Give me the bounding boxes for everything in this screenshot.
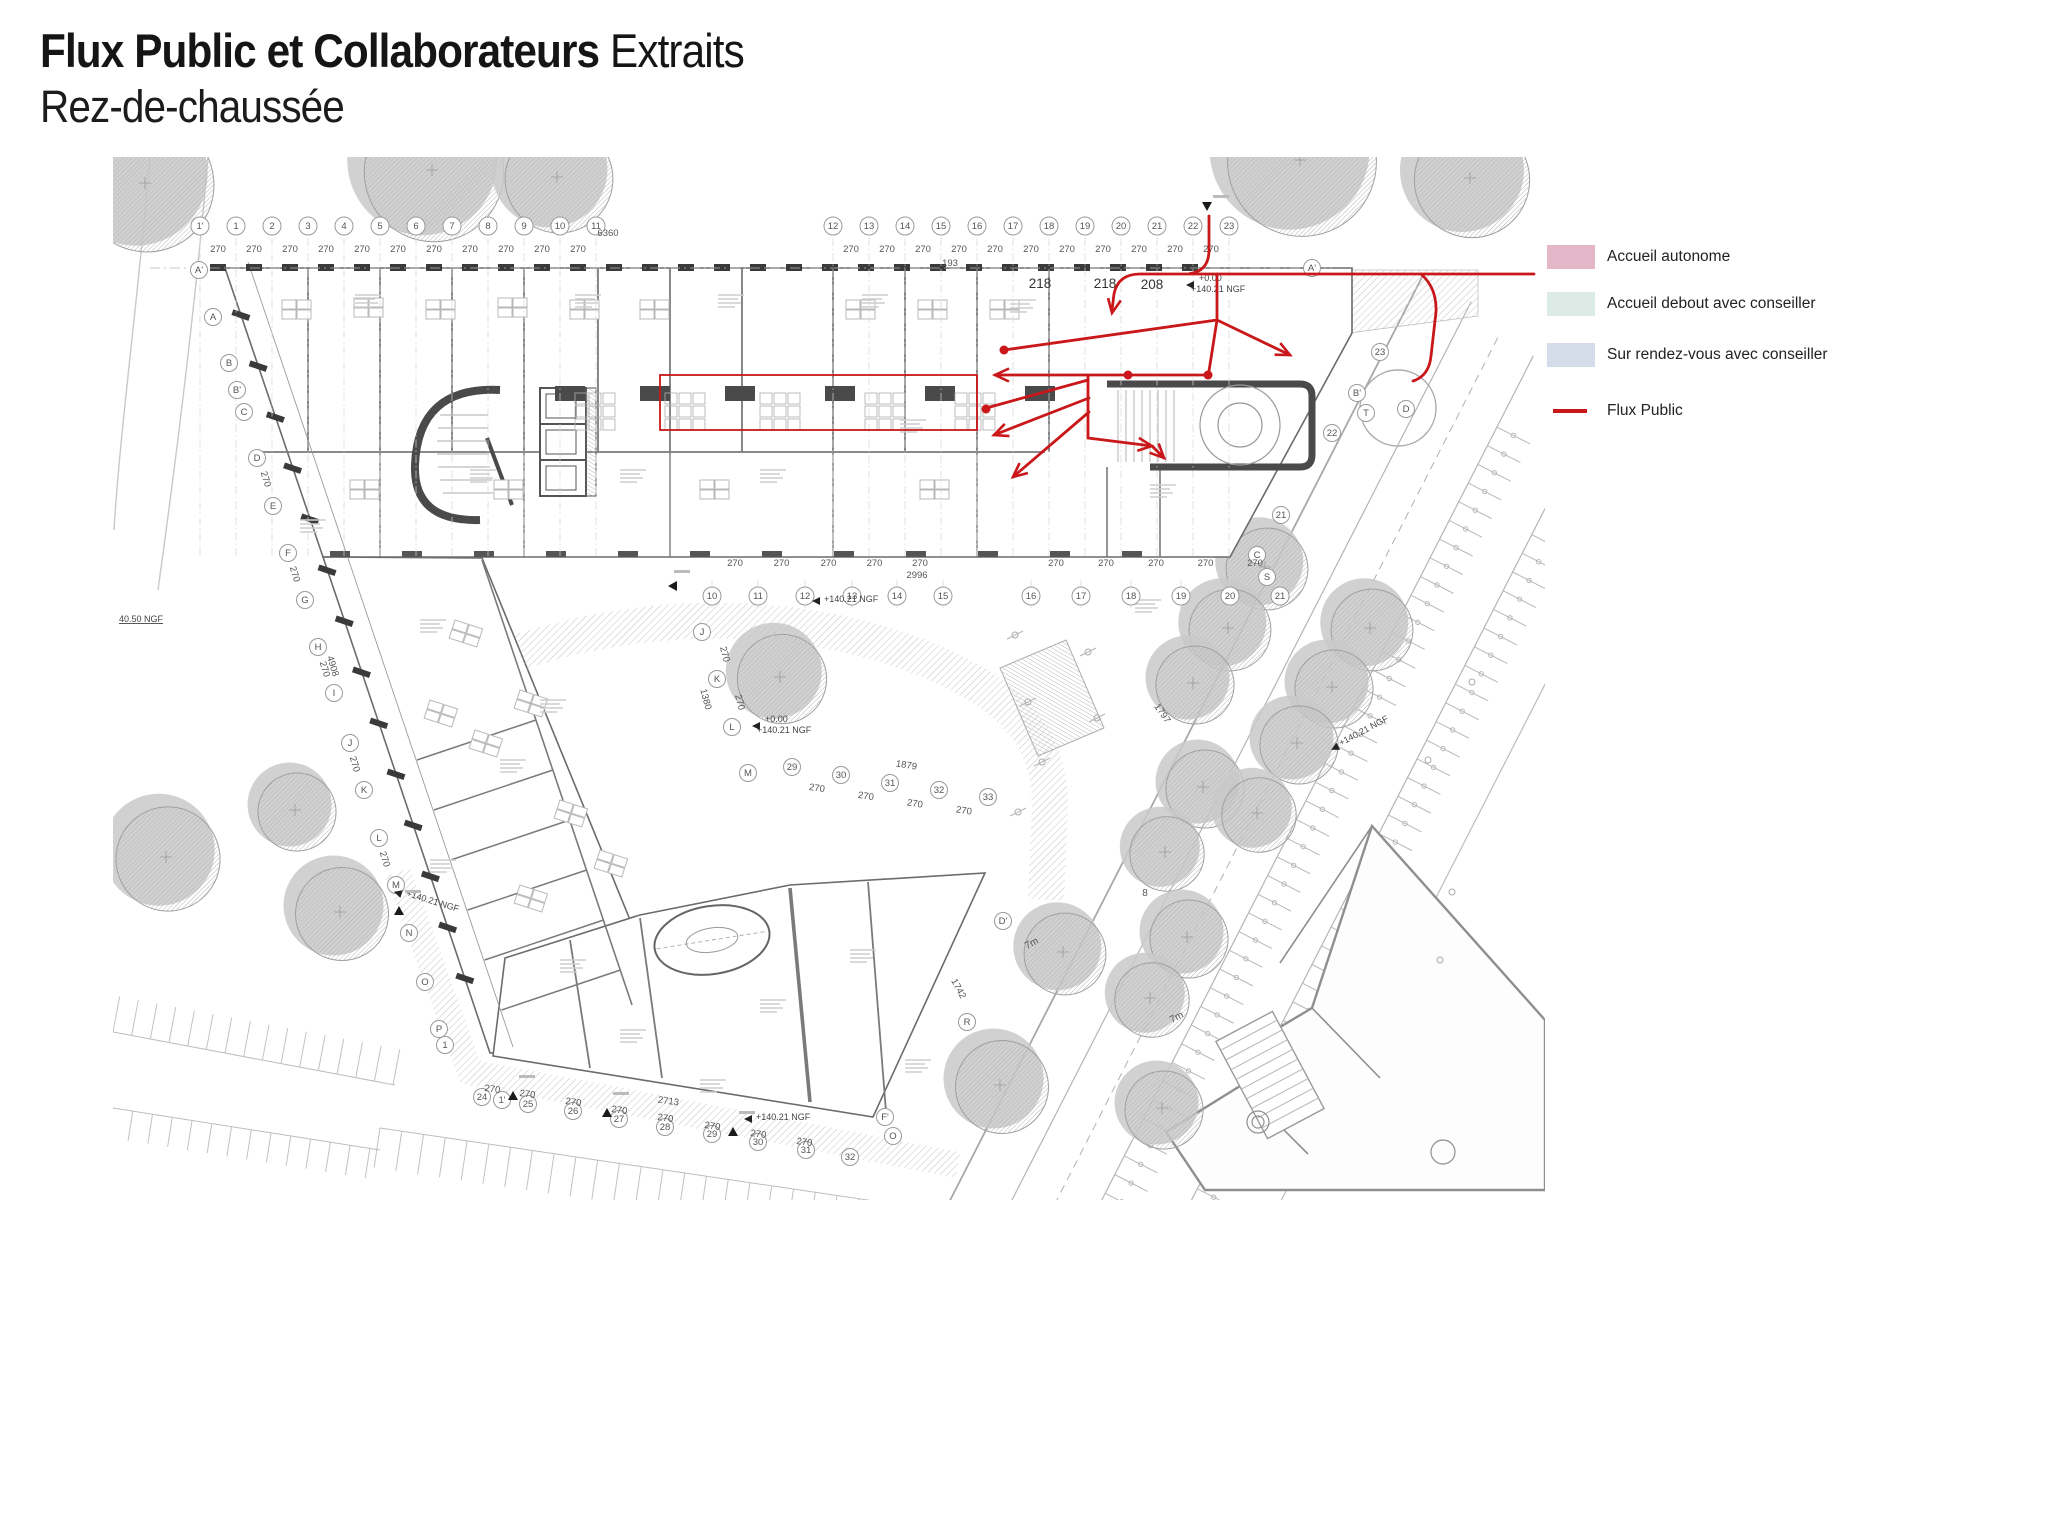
slide: Flux Public et Collaborateurs Extraits R… xyxy=(0,0,2048,1536)
tree xyxy=(1115,1061,1204,1150)
svg-text:270: 270 xyxy=(704,1120,721,1133)
svg-text:18: 18 xyxy=(1126,591,1137,602)
svg-text:208: 208 xyxy=(1141,277,1164,292)
svg-text:6: 6 xyxy=(413,221,418,232)
svg-text:270: 270 xyxy=(377,850,392,868)
svg-text:11: 11 xyxy=(753,591,763,602)
svg-text:14: 14 xyxy=(900,221,911,232)
tree xyxy=(1210,70,1377,237)
svg-text:270: 270 xyxy=(1048,558,1064,569)
flux-node xyxy=(1000,346,1009,355)
svg-text:L: L xyxy=(376,833,381,844)
svg-text:2996: 2996 xyxy=(906,570,927,581)
svg-text:+0.00: +0.00 xyxy=(765,714,788,724)
svg-text:O: O xyxy=(421,977,428,988)
svg-text:270: 270 xyxy=(867,558,883,569)
svg-text:29: 29 xyxy=(787,762,798,773)
svg-text:218: 218 xyxy=(1029,276,1052,291)
svg-text:10: 10 xyxy=(707,591,718,602)
svg-text:9: 9 xyxy=(521,221,526,232)
tree xyxy=(1400,108,1530,238)
svg-text:270: 270 xyxy=(774,558,790,569)
svg-text:193: 193 xyxy=(942,258,958,269)
svg-text:270: 270 xyxy=(1203,244,1219,255)
svg-text:270: 270 xyxy=(246,244,262,255)
svg-text:2: 2 xyxy=(269,221,274,232)
svg-text:L: L xyxy=(729,722,734,733)
svg-text:1: 1 xyxy=(442,1040,447,1051)
svg-text:270: 270 xyxy=(210,244,226,255)
svg-text:22: 22 xyxy=(1327,428,1338,439)
svg-text:J: J xyxy=(348,738,353,749)
svg-text:G: G xyxy=(301,595,308,606)
svg-text:270: 270 xyxy=(1131,244,1147,255)
svg-text:270: 270 xyxy=(1148,558,1164,569)
svg-text:270: 270 xyxy=(717,645,732,663)
svg-text:21: 21 xyxy=(1275,591,1286,602)
tree xyxy=(103,794,220,911)
svg-text:270: 270 xyxy=(912,558,928,569)
svg-text:270: 270 xyxy=(519,1088,536,1101)
svg-text:270: 270 xyxy=(354,244,370,255)
svg-text:F': F' xyxy=(881,1112,889,1123)
svg-text:B: B xyxy=(226,358,232,369)
svg-text:16: 16 xyxy=(1026,591,1037,602)
svg-text:270: 270 xyxy=(318,244,334,255)
svg-text:+140.21 NGF: +140.21 NGF xyxy=(756,1112,811,1122)
svg-text:270: 270 xyxy=(484,1083,501,1096)
svg-text:21: 21 xyxy=(1276,510,1287,521)
svg-text:R: R xyxy=(964,1017,971,1028)
svg-text:270: 270 xyxy=(282,244,298,255)
svg-text:32: 32 xyxy=(845,1152,856,1163)
svg-text:8: 8 xyxy=(1142,888,1148,899)
svg-text:218: 218 xyxy=(1094,276,1117,291)
svg-text:4: 4 xyxy=(341,221,346,232)
svg-text:12: 12 xyxy=(828,221,839,232)
svg-text:32: 32 xyxy=(934,785,945,796)
svg-text:5: 5 xyxy=(377,221,382,232)
svg-text:7: 7 xyxy=(449,221,454,232)
svg-text:33: 33 xyxy=(983,792,994,803)
svg-text:270: 270 xyxy=(611,1104,628,1117)
svg-text:270: 270 xyxy=(951,244,967,255)
svg-text:C: C xyxy=(241,407,248,418)
svg-text:270: 270 xyxy=(258,470,273,488)
svg-text:8: 8 xyxy=(485,221,490,232)
svg-text:19: 19 xyxy=(1176,591,1187,602)
svg-text:270: 270 xyxy=(955,804,972,817)
svg-text:270: 270 xyxy=(1095,244,1111,255)
svg-text:P: P xyxy=(436,1024,442,1035)
svg-text:270: 270 xyxy=(906,797,923,810)
svg-text:B': B' xyxy=(233,385,241,396)
svg-text:F: F xyxy=(285,548,291,559)
svg-text:D: D xyxy=(1403,404,1410,415)
svg-text:18: 18 xyxy=(1044,221,1055,232)
svg-text:270: 270 xyxy=(426,244,442,255)
tree xyxy=(248,763,337,852)
tree xyxy=(491,111,612,232)
svg-text:17: 17 xyxy=(1008,221,1019,232)
floor-plan: 1'12345678910111213141516171819202122231… xyxy=(0,0,2048,1536)
svg-text:K: K xyxy=(361,785,368,796)
svg-text:13: 13 xyxy=(864,221,875,232)
svg-text:20: 20 xyxy=(1225,591,1236,602)
svg-text:K: K xyxy=(714,674,721,685)
tree xyxy=(284,856,389,961)
svg-text:23: 23 xyxy=(1375,347,1386,358)
svg-text:I: I xyxy=(333,688,336,699)
svg-text:270: 270 xyxy=(657,1112,674,1125)
svg-text:30: 30 xyxy=(836,770,847,781)
svg-text:270: 270 xyxy=(390,244,406,255)
svg-text:T: T xyxy=(1363,408,1369,419)
svg-text:40.50 NGF: 40.50 NGF xyxy=(119,614,164,624)
svg-text:J: J xyxy=(700,627,705,638)
svg-text:270: 270 xyxy=(808,782,825,795)
svg-text:1': 1' xyxy=(498,1095,505,1106)
svg-text:270: 270 xyxy=(915,244,931,255)
svg-text:1879: 1879 xyxy=(895,758,918,772)
svg-text:15: 15 xyxy=(936,221,947,232)
svg-text:270: 270 xyxy=(570,244,586,255)
svg-text:270: 270 xyxy=(857,790,874,803)
svg-text:22: 22 xyxy=(1188,221,1199,232)
svg-text:M: M xyxy=(392,880,400,891)
svg-text:270: 270 xyxy=(1198,558,1214,569)
svg-text:23: 23 xyxy=(1224,221,1235,232)
flux-node xyxy=(1204,371,1213,380)
svg-text:10: 10 xyxy=(555,221,566,232)
svg-text:270: 270 xyxy=(796,1136,813,1149)
svg-text:D: D xyxy=(254,453,261,464)
svg-text:270: 270 xyxy=(879,244,895,255)
top-wing xyxy=(225,268,1352,557)
svg-text:+140.21 NGF: +140.21 NGF xyxy=(757,725,812,735)
svg-text:270: 270 xyxy=(821,558,837,569)
svg-text:B': B' xyxy=(1353,388,1361,399)
svg-text:1742: 1742 xyxy=(948,977,968,1001)
tree xyxy=(944,1029,1049,1134)
svg-text:N: N xyxy=(406,928,413,939)
svg-text:270: 270 xyxy=(1098,558,1114,569)
svg-text:1': 1' xyxy=(196,221,203,232)
svg-text:1: 1 xyxy=(233,221,238,232)
svg-text:20: 20 xyxy=(1116,221,1127,232)
svg-text:S: S xyxy=(1264,572,1270,583)
svg-text:19: 19 xyxy=(1080,221,1091,232)
svg-text:6360: 6360 xyxy=(597,228,618,239)
svg-text:270: 270 xyxy=(750,1128,767,1141)
svg-text:270: 270 xyxy=(987,244,1003,255)
svg-text:270: 270 xyxy=(843,244,859,255)
svg-text:M: M xyxy=(744,768,752,779)
svg-text:E: E xyxy=(270,501,276,512)
svg-text:17: 17 xyxy=(1076,591,1087,602)
flux-node xyxy=(1124,371,1133,380)
svg-text:270: 270 xyxy=(498,244,514,255)
svg-text:14: 14 xyxy=(892,591,903,602)
svg-text:270: 270 xyxy=(1059,244,1075,255)
neighbor-building xyxy=(1166,826,1545,1190)
svg-text:3: 3 xyxy=(305,221,310,232)
svg-text:A': A' xyxy=(195,265,203,276)
svg-text:O: O xyxy=(889,1131,896,1142)
svg-text:1380: 1380 xyxy=(697,688,713,711)
elevators xyxy=(540,388,596,496)
svg-text:A': A' xyxy=(1308,263,1316,274)
svg-text:H: H xyxy=(315,642,322,653)
svg-text:D': D' xyxy=(999,916,1008,927)
svg-text:21: 21 xyxy=(1152,221,1163,232)
svg-text:270: 270 xyxy=(727,558,743,569)
svg-text:A: A xyxy=(210,312,217,323)
svg-text:12: 12 xyxy=(800,591,811,602)
svg-text:270: 270 xyxy=(1167,244,1183,255)
tree xyxy=(347,85,504,242)
svg-text:15: 15 xyxy=(938,591,949,602)
svg-text:270: 270 xyxy=(534,244,550,255)
svg-text:270: 270 xyxy=(1247,558,1263,569)
svg-text:31: 31 xyxy=(885,778,896,789)
svg-text:16: 16 xyxy=(972,221,983,232)
svg-text:270: 270 xyxy=(565,1096,582,1109)
svg-text:270: 270 xyxy=(347,755,362,773)
svg-text:270: 270 xyxy=(1023,244,1039,255)
svg-text:270: 270 xyxy=(287,565,302,583)
svg-text:270: 270 xyxy=(462,244,478,255)
flux-node xyxy=(982,405,991,414)
svg-text:+140.21 NGF: +140.21 NGF xyxy=(824,594,879,604)
